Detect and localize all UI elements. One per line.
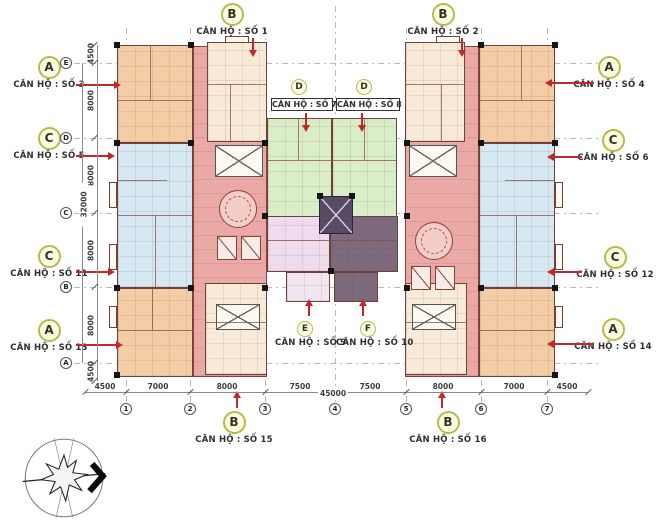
elevator-right-1: [411, 266, 431, 290]
elevator-right-2: [435, 266, 455, 290]
unit-1-block: [207, 42, 267, 142]
leader-arrow-unit-2: [461, 38, 463, 50]
interior-wall: [505, 180, 555, 181]
column: [114, 42, 120, 48]
dim-left-1: 8000: [87, 83, 96, 119]
leader-arrow-unit-1: [252, 38, 254, 50]
dim-tick: [585, 389, 591, 395]
stair-core-right: [409, 145, 457, 177]
unit-2-badge: B: [432, 3, 455, 26]
dim-bottom-7: 4500: [552, 382, 582, 391]
dim-left-4: 8000: [87, 308, 96, 344]
dim-bottom-3: 7500: [285, 382, 315, 391]
unit-9-text: CĂN HỘ : SỐ 9: [275, 338, 335, 348]
unit-12-text: CĂN HỘ : SỐ 12: [572, 270, 658, 280]
unit-1-badge: B: [221, 3, 244, 26]
column: [552, 285, 558, 291]
column: [262, 213, 268, 219]
column: [114, 285, 120, 291]
leader-arrow-unit-9: [308, 306, 310, 316]
dim-left-5: 4500: [87, 354, 96, 390]
unit-14-block: [479, 288, 555, 377]
floor-plan-canvas: B CĂN HỘ : SỐ 1 B CĂN HỘ : SỐ 2 A CĂN HỘ…: [0, 0, 658, 524]
interior-wall: [441, 84, 442, 142]
unit-label-14: A CĂN HỘ : SỐ 14: [570, 318, 656, 352]
unit-8-boxed-label: CĂN HỘ : SỐ 8: [336, 98, 400, 111]
leader-arrow-unit-8: [361, 113, 363, 125]
unit-label-16: B CĂN HỘ : SỐ 16: [405, 411, 491, 445]
interior-wall: [298, 118, 299, 160]
column: [188, 285, 194, 291]
canopy: [436, 36, 460, 43]
column: [404, 285, 410, 291]
grid-bubble-row-c: C: [60, 207, 72, 219]
unit-label-6: C CĂN HỘ : SỐ 6: [570, 129, 656, 163]
interior-wall: [521, 45, 522, 100]
dim-bottom-total: 45000: [318, 389, 348, 398]
unit-4-block: [479, 45, 555, 143]
column: [404, 213, 410, 219]
unit-8-badge: D: [356, 79, 372, 95]
dim-left-total: 32000: [80, 183, 89, 227]
column: [552, 42, 558, 48]
leader-arrow-unit-16: [441, 398, 443, 408]
grid-bubble-col-6: 6: [475, 403, 487, 415]
unit-2-block: [405, 42, 465, 142]
interior-wall: [152, 288, 153, 330]
grid-bubble-col-4: 4: [329, 403, 341, 415]
unit-5-badge: C: [38, 127, 61, 150]
unit-4-badge: A: [598, 56, 621, 79]
dim-bottom-4: 7500: [355, 382, 385, 391]
interior-wall: [230, 84, 231, 142]
unit-16-text: CĂN HỘ : SỐ 16: [405, 435, 491, 445]
column: [114, 372, 120, 378]
dim-left-0: 4500: [87, 36, 96, 72]
column: [188, 42, 194, 48]
stair-lower-left: [216, 304, 260, 330]
unit-15-text: CĂN HỘ : SỐ 15: [191, 435, 277, 445]
unit-7-boxed-label: CĂN HỘ : SỐ 7: [271, 98, 333, 111]
unit-13-badge: A: [38, 319, 61, 342]
unit-2-text: CĂN HỘ : SỐ 2: [400, 27, 486, 37]
interior-wall: [117, 180, 167, 181]
balcony: [109, 182, 117, 208]
elevator-left-2: [241, 236, 261, 260]
unit-label-4: A CĂN HỘ : SỐ 4: [566, 56, 652, 90]
leader-arrow-unit-14: [554, 343, 594, 345]
canopy: [225, 36, 249, 43]
balcony: [555, 182, 563, 208]
balcony: [109, 306, 117, 328]
column: [349, 193, 355, 199]
lobby-rosette-left: [219, 190, 257, 228]
column: [404, 140, 410, 146]
unit-15-badge: B: [223, 411, 246, 434]
grid-bubble-col-2: 2: [184, 403, 196, 415]
grid-bubble-col-1: 1: [120, 403, 132, 415]
column: [478, 285, 484, 291]
unit-label-13: A CĂN HỘ : SỐ 13: [6, 319, 92, 353]
lobby-rosette-right: [415, 222, 453, 260]
leader-arrow-unit-12: [554, 271, 582, 273]
leader-arrow-unit-10: [362, 306, 364, 316]
column: [262, 140, 268, 146]
unit-label-1: B CĂN HỘ : SỐ 1: [189, 3, 275, 37]
leader-arrow-unit-4: [552, 82, 594, 84]
interior-wall: [479, 215, 555, 216]
dimension-line-left: [97, 45, 98, 381]
leader-arrow-unit-11: [76, 271, 108, 273]
interior-wall: [267, 240, 330, 241]
unit-7-badge: D: [291, 79, 307, 95]
interior-wall: [405, 322, 467, 323]
leader-arrow-unit-7: [305, 113, 307, 125]
unit-10-text: CĂN HỘ : SỐ 10: [336, 338, 400, 348]
unit-10-badge: F: [360, 321, 376, 337]
interior-wall: [117, 330, 193, 331]
unit-12-badge: C: [604, 246, 627, 269]
interior-wall: [155, 215, 156, 288]
central-stair: [319, 196, 353, 234]
dim-bottom-5: 8000: [428, 382, 458, 391]
column: [478, 140, 484, 146]
interior-wall: [117, 100, 193, 101]
column: [328, 268, 334, 274]
unit-10-lower-room: [334, 272, 378, 302]
dim-bottom-2: 8000: [212, 382, 242, 391]
interior-wall: [405, 84, 465, 85]
unit-13-block: [117, 288, 193, 377]
unit-label-10: F CĂN HỘ : SỐ 10: [336, 316, 400, 348]
grid-bubble-row-e: E: [60, 57, 72, 69]
unit-11-badge: C: [38, 245, 61, 268]
interior-wall: [330, 240, 398, 241]
unit-6-badge: C: [602, 129, 625, 152]
unit-label-11: C CĂN HỘ : SỐ 11: [6, 245, 92, 279]
column: [262, 285, 268, 291]
unit-3-badge: A: [38, 56, 61, 79]
interior-wall: [150, 45, 151, 100]
unit-label-9: E CĂN HỘ : SỐ 9: [275, 316, 335, 348]
balcony: [555, 306, 563, 328]
interior-wall: [267, 160, 332, 161]
grid-bubble-row-b: B: [60, 281, 72, 293]
unit-16-badge: B: [437, 411, 460, 434]
unit-6-text: CĂN HỘ : SỐ 6: [570, 153, 656, 163]
north-arrow-compass: [20, 434, 108, 522]
balcony: [109, 244, 117, 270]
dim-bottom-6: 7000: [499, 382, 529, 391]
column: [188, 140, 194, 146]
column: [552, 372, 558, 378]
interior-wall: [205, 322, 267, 323]
unit-1-text: CĂN HỘ : SỐ 1: [189, 27, 275, 37]
leader-arrow-unit-15: [236, 398, 238, 408]
leader-arrow-unit-6: [554, 156, 582, 158]
balcony: [555, 244, 563, 270]
stair-lower-right: [412, 304, 456, 330]
elevator-left-1: [217, 236, 237, 260]
interior-wall: [332, 160, 397, 161]
unit-9-lower-room: [286, 272, 330, 302]
grid-bubble-row-d: D: [60, 132, 72, 144]
dim-left-3: 8000: [87, 233, 96, 269]
column: [552, 140, 558, 146]
grid-bubble-col-3: 3: [259, 403, 271, 415]
grid-bubble-col-7: 7: [541, 403, 553, 415]
unit-label-15: B CĂN HỘ : SỐ 15: [191, 411, 277, 445]
grid-bubble-col-5: 5: [400, 403, 412, 415]
unit-3-block: [117, 45, 193, 143]
interior-wall: [516, 215, 517, 288]
interior-wall: [479, 100, 555, 101]
interior-wall: [207, 84, 267, 85]
grid-bubble-row-a: A: [60, 357, 72, 369]
unit-9-badge: E: [297, 321, 313, 337]
stair-core-left: [215, 145, 263, 177]
column: [114, 140, 120, 146]
column: [317, 193, 323, 199]
unit-label-2: B CĂN HỘ : SỐ 2: [400, 3, 486, 37]
dim-bottom-1: 7000: [143, 382, 173, 391]
column: [478, 42, 484, 48]
interior-wall: [479, 330, 555, 331]
unit-14-badge: A: [602, 318, 625, 341]
unit-label-12: C CĂN HỘ : SỐ 12: [572, 246, 658, 280]
